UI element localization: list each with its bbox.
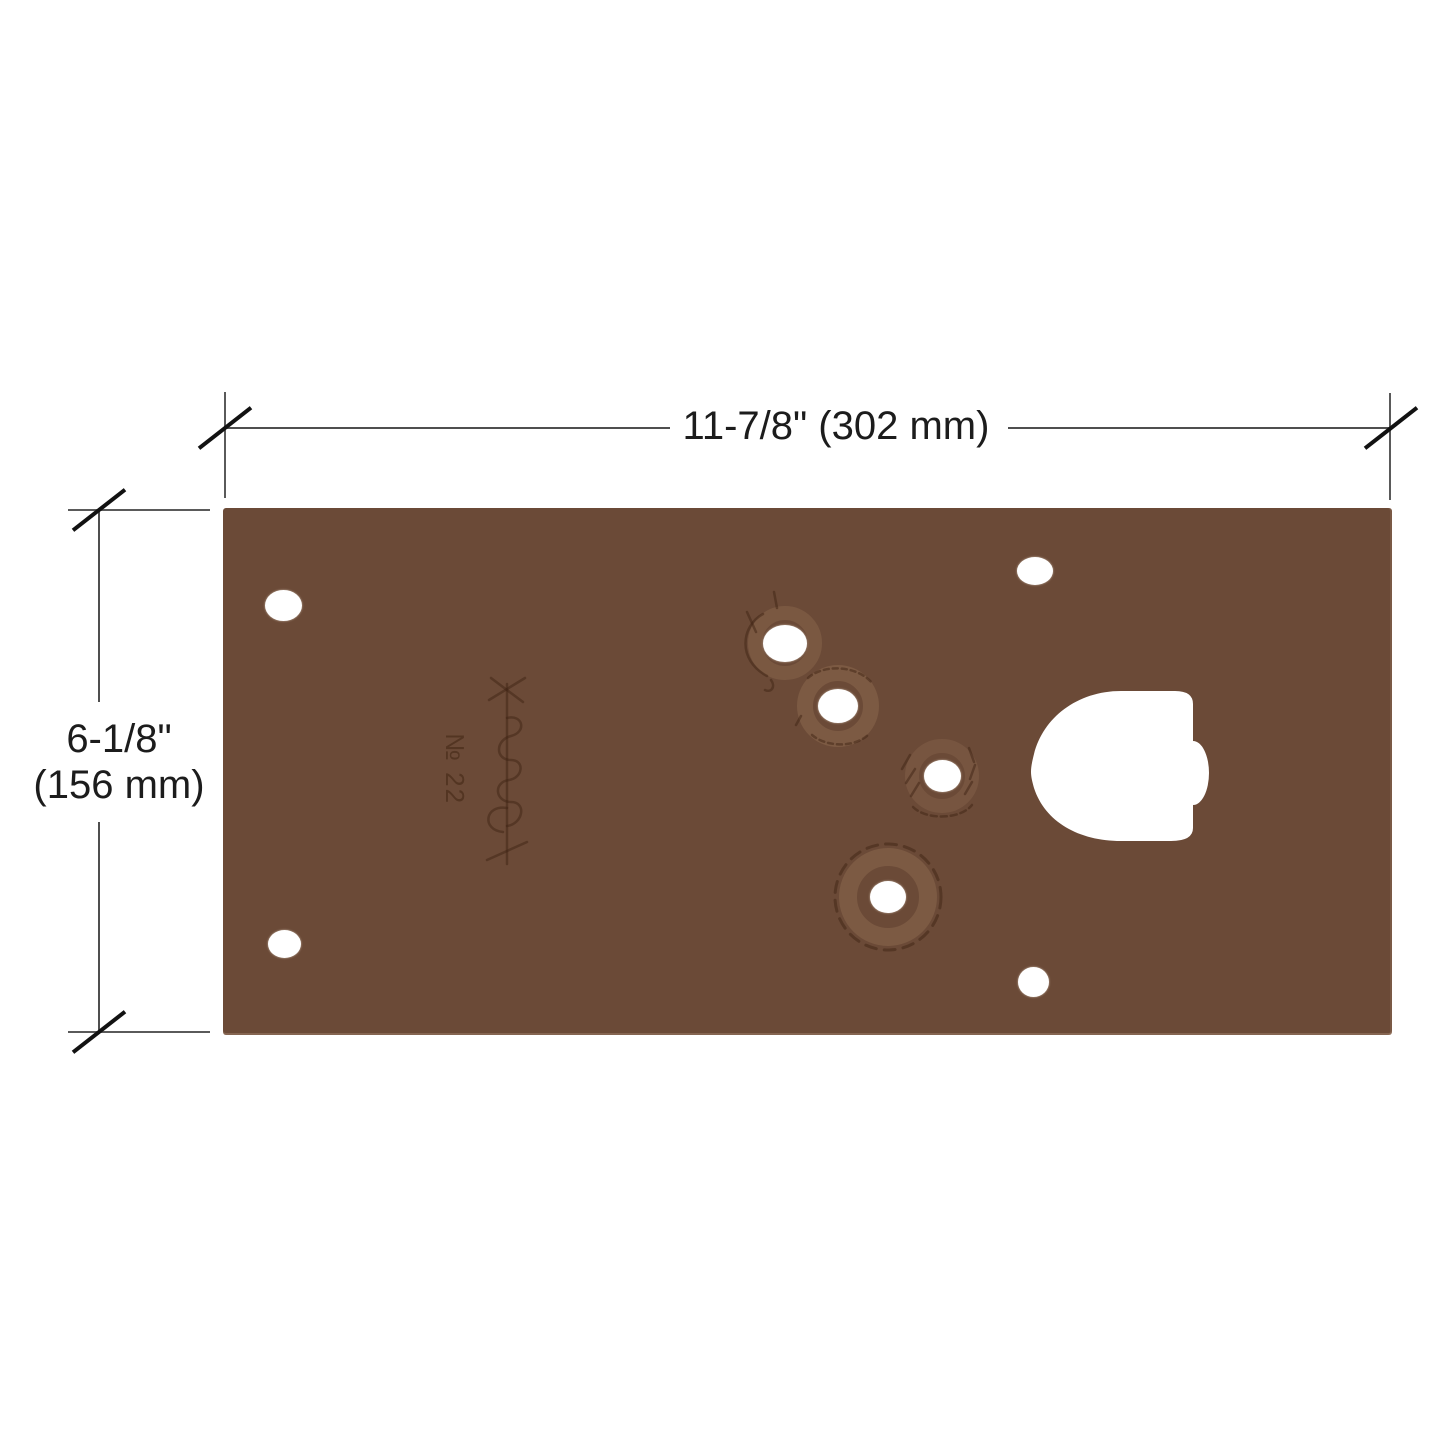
height-dimension-label-inches: 6-1/8"	[19, 716, 219, 762]
diagram-canvas: 11-7/8" (302 mm) 6-1/8" (156 mm)	[0, 0, 1445, 1445]
spindle-cutout	[1031, 691, 1209, 841]
engraved-script-logo	[487, 678, 527, 864]
height-extension-line-top	[68, 509, 210, 511]
stamped-marks	[746, 592, 976, 950]
height-dimension-line-bottom	[98, 822, 100, 1033]
width-dimension-line-left	[224, 427, 670, 429]
width-dimension-line-right	[1008, 427, 1392, 429]
model-number-engraving: № 22	[442, 733, 468, 803]
plate-engravings	[223, 508, 1392, 1035]
plate: № 22	[223, 508, 1392, 1035]
width-extension-line-left	[224, 392, 226, 498]
height-dimension-line-top	[98, 509, 100, 702]
width-dimension-label: 11-7/8" (302 mm)	[636, 403, 1036, 449]
height-dimension-label-mm: (156 mm)	[19, 762, 219, 808]
height-extension-line-bottom	[68, 1031, 210, 1033]
width-extension-line-right	[1389, 393, 1391, 500]
